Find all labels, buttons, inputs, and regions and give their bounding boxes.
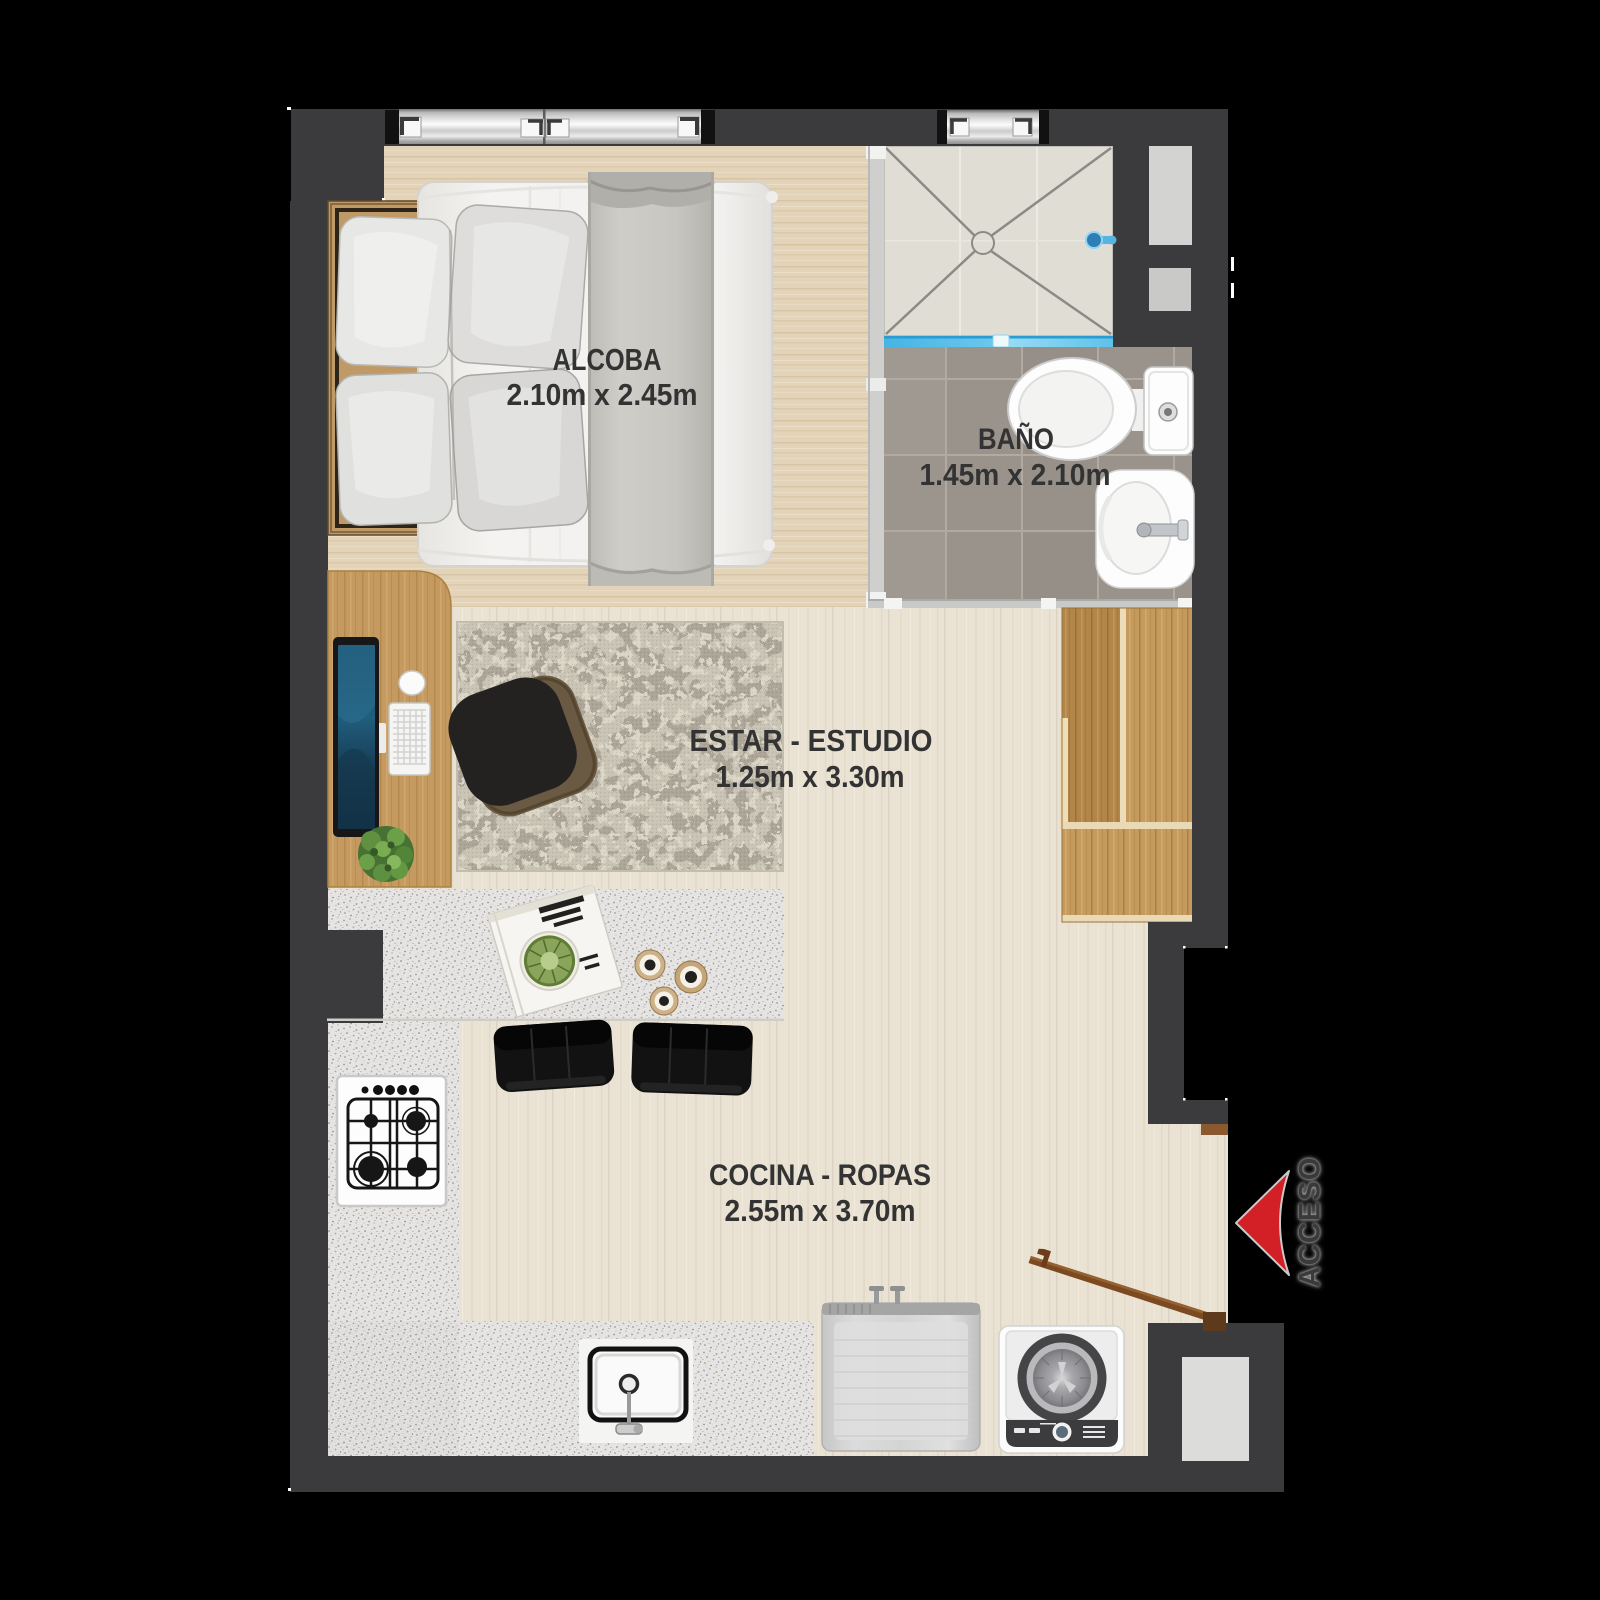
svg-text:1.45m x 2.10m: 1.45m x 2.10m — [920, 457, 1111, 492]
svg-text:BAÑO: BAÑO — [978, 422, 1054, 456]
svg-text:ALCOBA: ALCOBA — [553, 342, 662, 377]
svg-text:ACCESO: ACCESO — [1294, 1157, 1327, 1288]
svg-text:1.25m x 3.30m: 1.25m x 3.30m — [716, 759, 905, 794]
svg-text:2.10m x 2.45m: 2.10m x 2.45m — [507, 377, 698, 412]
svg-text:2.55m x 3.70m: 2.55m x 3.70m — [725, 1193, 916, 1228]
svg-text:ESTAR - ESTUDIO: ESTAR - ESTUDIO — [690, 723, 933, 758]
svg-text:COCINA - ROPAS: COCINA - ROPAS — [709, 1159, 931, 1192]
